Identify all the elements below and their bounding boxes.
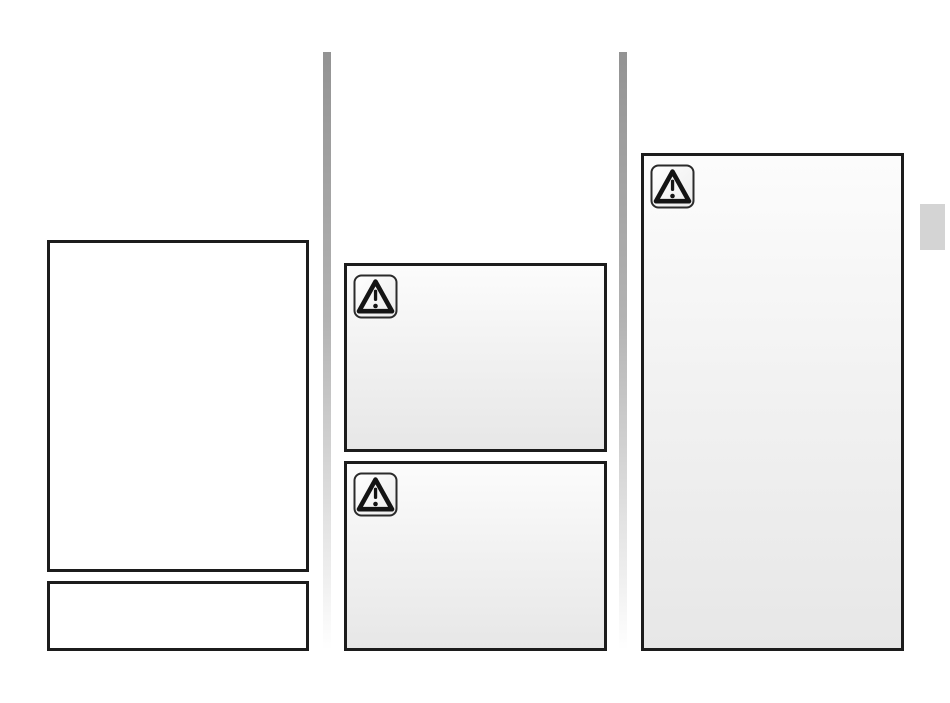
warning-box-middle-top (344, 263, 607, 452)
column-divider-right (619, 52, 627, 650)
content-box-left-short (47, 581, 309, 651)
column-divider-left (323, 52, 331, 650)
warning-box-right-tall (641, 153, 904, 651)
section-tab-marker (920, 204, 945, 250)
warning-box-middle-bottom (344, 461, 607, 651)
warning-triangle-icon (353, 472, 399, 518)
content-box-left-tall (47, 240, 309, 572)
warning-triangle-icon (650, 164, 696, 210)
warning-triangle-icon (353, 274, 399, 320)
manual-page (0, 0, 950, 703)
